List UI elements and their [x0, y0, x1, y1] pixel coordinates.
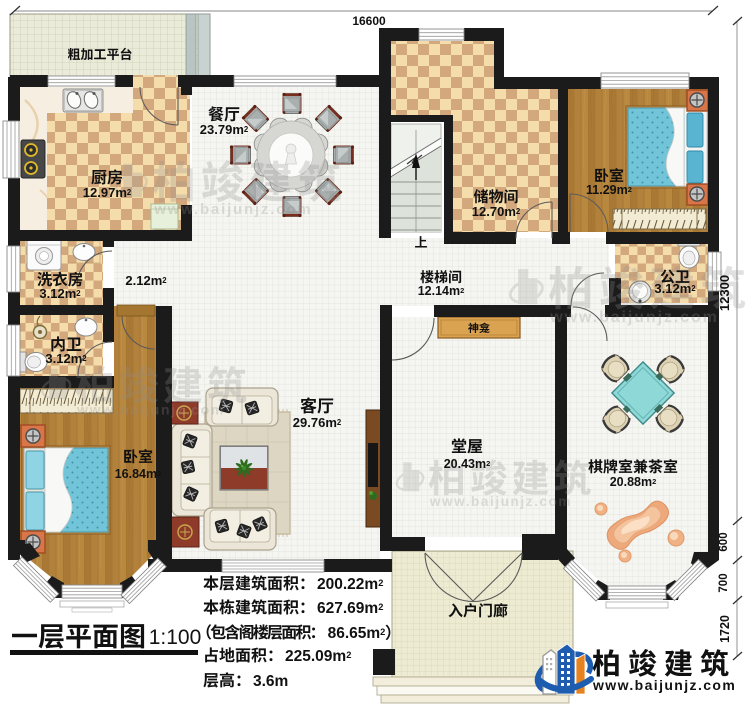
svg-text:20.88m2: 20.88m2 [610, 475, 657, 489]
svg-text:2.12m2: 2.12m2 [125, 273, 167, 288]
svg-text:20.43m2: 20.43m2 [444, 457, 491, 471]
svg-text:www.baijunjz.com: www.baijunjz.com [429, 494, 572, 509]
svg-text:www.baijunjz.com: www.baijunjz.com [592, 677, 736, 693]
svg-text:86.65m2）: 86.65m2） [328, 624, 401, 642]
svg-text:12.70m2: 12.70m2 [472, 204, 521, 219]
svg-text:225.09m2: 225.09m2 [285, 648, 351, 665]
svg-text:11.29m2: 11.29m2 [586, 183, 632, 197]
svg-text:700: 700 [718, 573, 730, 592]
svg-text:12.97m2: 12.97m2 [83, 185, 132, 200]
svg-text:www.baijunjz.com: www.baijunjz.com [153, 201, 312, 218]
svg-text:3.12m2: 3.12m2 [654, 281, 696, 296]
svg-text:www.baijunjz.com: www.baijunjz.com [549, 309, 719, 326]
svg-text:23.79m2: 23.79m2 [200, 122, 249, 137]
svg-text:www.baijunjz.com: www.baijunjz.com [76, 402, 225, 418]
svg-text:16.84m2: 16.84m2 [115, 467, 162, 481]
svg-text:12300: 12300 [717, 275, 732, 311]
svg-text:16600: 16600 [352, 14, 386, 28]
svg-text:29.76m2: 29.76m2 [293, 415, 342, 430]
svg-text:1720: 1720 [718, 615, 732, 643]
svg-text:3.12m2: 3.12m2 [39, 286, 81, 301]
svg-text:12.14m2: 12.14m2 [418, 284, 465, 298]
svg-text:3.6m: 3.6m [253, 673, 288, 690]
svg-text:200.22m2: 200.22m2 [317, 576, 383, 593]
svg-text:1:100: 1:100 [149, 626, 202, 649]
svg-text:600: 600 [718, 532, 730, 551]
svg-text:627.69m2: 627.69m2 [317, 600, 383, 617]
svg-text:3.12m2: 3.12m2 [45, 351, 87, 366]
